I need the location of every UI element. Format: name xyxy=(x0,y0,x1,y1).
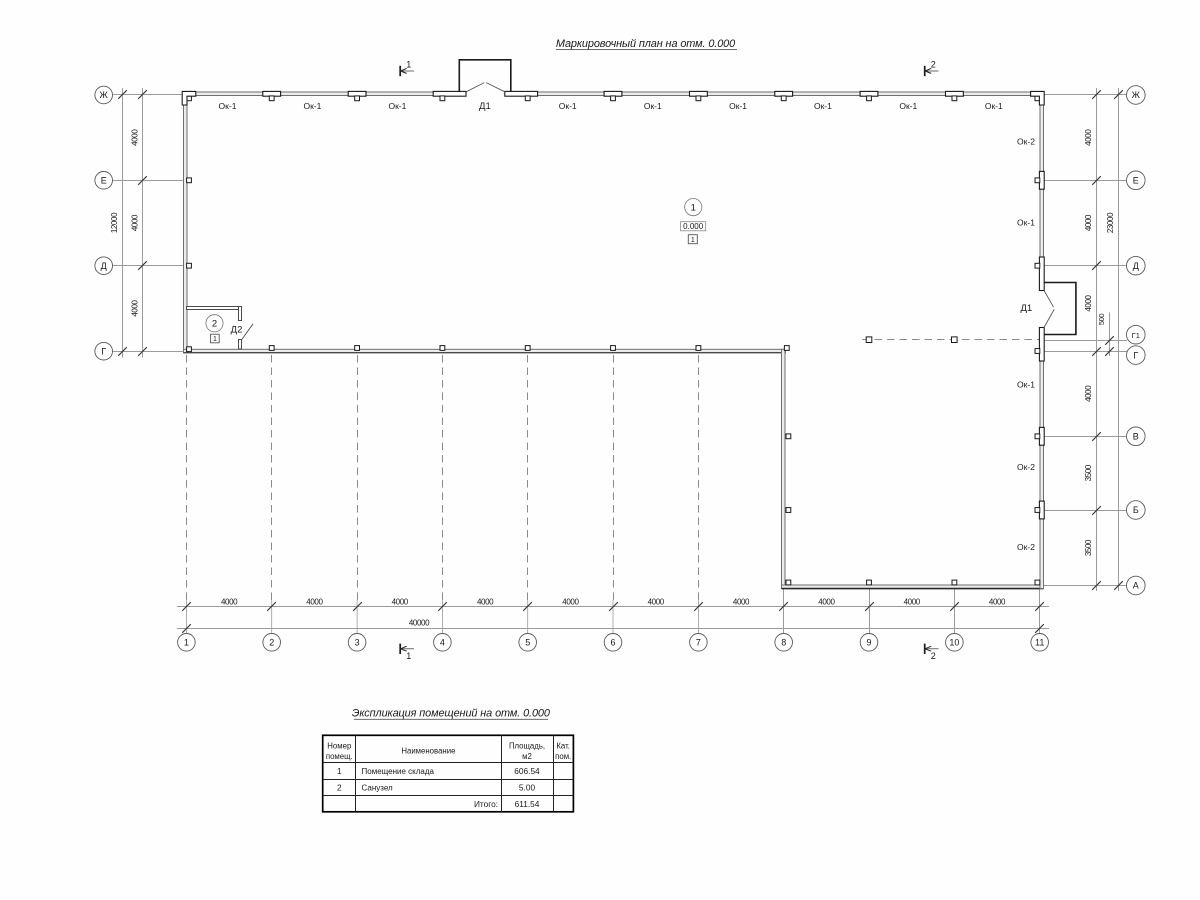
svg-text:4000: 4000 xyxy=(818,597,835,606)
svg-text:Ок-1: Ок-1 xyxy=(1017,380,1035,390)
svg-text:Номер: Номер xyxy=(327,742,352,751)
svg-text:Экспликация помещений на отм.: Экспликация помещений на отм. 0.000 xyxy=(352,708,550,720)
svg-text:Б: Б xyxy=(1133,505,1139,515)
svg-text:4000: 4000 xyxy=(306,597,323,606)
svg-text:4000: 4000 xyxy=(648,597,665,606)
svg-text:2: 2 xyxy=(212,319,217,330)
svg-text:6: 6 xyxy=(610,638,615,648)
svg-text:Ок-2: Ок-2 xyxy=(1017,137,1035,147)
svg-text:606.54: 606.54 xyxy=(514,766,540,776)
svg-text:4000: 4000 xyxy=(1084,129,1093,146)
svg-text:м2: м2 xyxy=(522,752,532,761)
svg-text:1: 1 xyxy=(213,336,217,343)
svg-text:3500: 3500 xyxy=(1084,464,1093,481)
svg-text:1: 1 xyxy=(337,766,342,776)
svg-text:Ок-1: Ок-1 xyxy=(559,101,577,111)
svg-text:Г: Г xyxy=(101,346,106,356)
svg-text:2: 2 xyxy=(931,59,936,69)
svg-text:Санузел: Санузел xyxy=(362,784,393,793)
svg-text:4000: 4000 xyxy=(477,597,494,606)
svg-text:4000: 4000 xyxy=(130,214,139,231)
svg-text:9: 9 xyxy=(866,638,871,648)
svg-text:Кат.: Кат. xyxy=(556,742,570,751)
svg-text:23000: 23000 xyxy=(1106,212,1115,233)
svg-text:Помещение склада: Помещение склада xyxy=(362,767,435,776)
svg-text:5.00: 5.00 xyxy=(519,783,536,793)
svg-text:Г: Г xyxy=(1133,350,1138,360)
svg-text:Ок-1: Ок-1 xyxy=(303,101,321,111)
svg-text:4000: 4000 xyxy=(904,597,921,606)
svg-text:10: 10 xyxy=(949,638,959,648)
svg-text:В: В xyxy=(1133,432,1139,442)
svg-text:11: 11 xyxy=(1035,638,1044,648)
svg-text:4000: 4000 xyxy=(130,129,139,146)
svg-text:помещ.: помещ. xyxy=(326,752,353,761)
svg-text:Ок-1: Ок-1 xyxy=(388,101,406,111)
svg-text:Ок-1: Ок-1 xyxy=(899,101,917,111)
svg-text:4000: 4000 xyxy=(130,299,139,316)
svg-text:0.000: 0.000 xyxy=(683,222,704,231)
svg-text:2: 2 xyxy=(269,638,274,648)
svg-text:Е: Е xyxy=(1133,176,1139,186)
svg-text:611.54: 611.54 xyxy=(515,799,540,809)
svg-text:Ж: Ж xyxy=(100,90,109,100)
svg-text:4000: 4000 xyxy=(989,597,1006,606)
svg-text:40000: 40000 xyxy=(409,619,430,628)
svg-text:4000: 4000 xyxy=(1084,294,1093,311)
svg-text:4000: 4000 xyxy=(562,597,579,606)
svg-text:Ок-1: Ок-1 xyxy=(985,101,1003,111)
svg-text:1: 1 xyxy=(691,237,695,244)
svg-text:1: 1 xyxy=(406,59,411,69)
svg-text:Площадь,: Площадь, xyxy=(509,742,545,751)
svg-text:Ок-1: Ок-1 xyxy=(219,101,237,111)
svg-text:1: 1 xyxy=(184,638,189,648)
svg-text:Д1: Д1 xyxy=(1020,303,1032,314)
svg-text:4000: 4000 xyxy=(1084,214,1093,231)
svg-text:Д: Д xyxy=(1133,261,1139,271)
svg-text:3500: 3500 xyxy=(1084,539,1093,556)
svg-text:Г1: Г1 xyxy=(1132,331,1140,340)
svg-text:1: 1 xyxy=(691,203,696,214)
svg-text:2: 2 xyxy=(337,783,342,793)
svg-text:4000: 4000 xyxy=(733,597,750,606)
svg-text:Ж: Ж xyxy=(1132,90,1141,100)
svg-text:500: 500 xyxy=(1097,314,1106,326)
svg-text:Ок-1: Ок-1 xyxy=(1017,218,1035,228)
svg-text:Ок-2: Ок-2 xyxy=(1017,462,1035,472)
svg-text:Маркировочный план на отм. 0.0: Маркировочный план на отм. 0.000 xyxy=(556,38,735,50)
svg-text:Д1: Д1 xyxy=(479,101,491,112)
svg-text:7: 7 xyxy=(696,638,701,648)
svg-text:Ок-1: Ок-1 xyxy=(729,101,747,111)
svg-text:5: 5 xyxy=(525,638,530,648)
svg-text:Итого:: Итого: xyxy=(474,799,498,809)
svg-text:2: 2 xyxy=(931,651,936,661)
svg-text:3: 3 xyxy=(355,638,360,648)
svg-text:Ок-1: Ок-1 xyxy=(814,101,832,111)
svg-text:1: 1 xyxy=(406,651,411,661)
svg-text:12000: 12000 xyxy=(110,212,119,233)
svg-text:Д2: Д2 xyxy=(231,324,243,335)
svg-text:Ок-1: Ок-1 xyxy=(644,101,662,111)
svg-text:Ок-2: Ок-2 xyxy=(1017,542,1035,552)
svg-text:Е: Е xyxy=(101,176,107,186)
svg-text:4000: 4000 xyxy=(221,597,238,606)
svg-text:Наименование: Наименование xyxy=(401,747,455,756)
svg-text:4000: 4000 xyxy=(1084,385,1093,402)
svg-text:4000: 4000 xyxy=(392,597,409,606)
svg-text:А: А xyxy=(1133,581,1139,591)
svg-text:8: 8 xyxy=(781,638,786,648)
svg-text:4: 4 xyxy=(440,638,445,648)
svg-text:Д: Д xyxy=(101,261,107,271)
svg-text:пом.: пом. xyxy=(555,752,571,761)
